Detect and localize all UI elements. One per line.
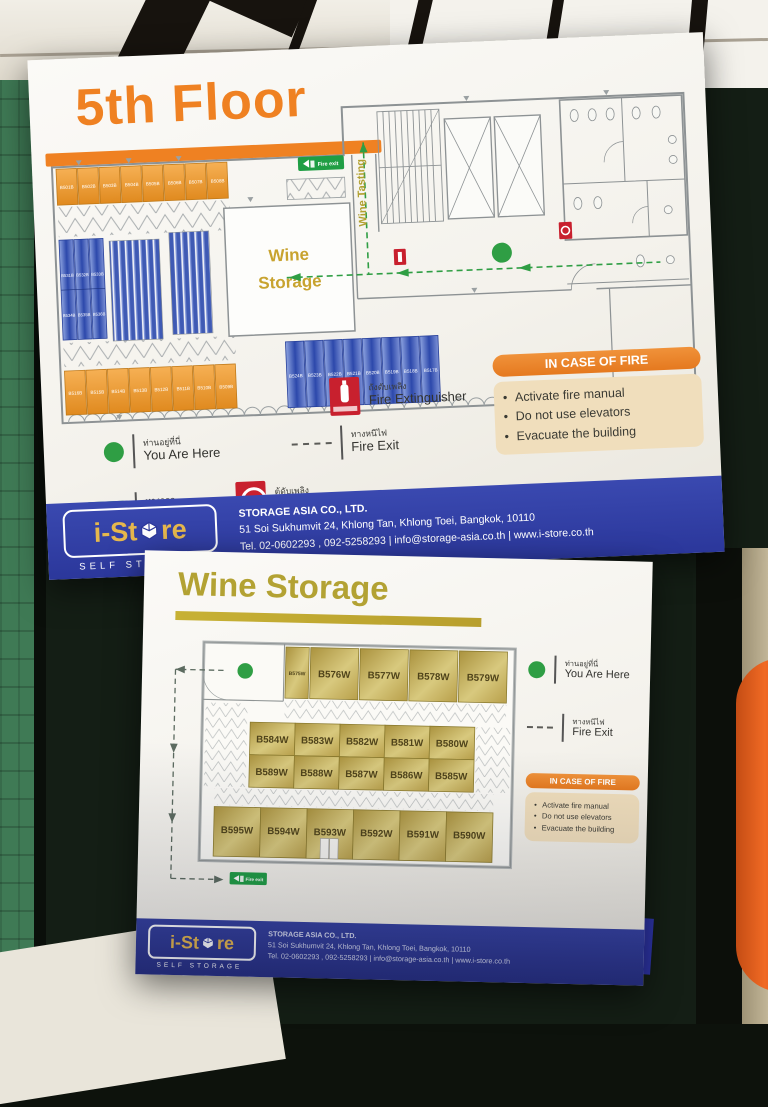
signw-title-underline: [175, 611, 481, 627]
legend-fire-exit: ทางหนีไฟ Fire Exit: [291, 423, 400, 461]
svg-text:B510B: B510B: [197, 385, 211, 391]
svg-text:B582W: B582W: [346, 736, 379, 748]
wine-legend-you-are-here: ท่านอยู่ที่นี่ You Are Here: [528, 655, 630, 685]
svg-text:B579W: B579W: [467, 673, 500, 685]
brand-subtitle: SELF STORAGE: [147, 961, 251, 970]
svg-text:B588W: B588W: [300, 768, 333, 780]
extinguisher-text: Fire Extinguisher: [369, 389, 467, 409]
svg-text:B509B: B509B: [219, 384, 233, 390]
svg-text:B592W: B592W: [360, 828, 393, 840]
svg-text:B577W: B577W: [368, 670, 401, 682]
svg-text:Fire exit: Fire exit: [318, 161, 339, 168]
you-are-here-marker: [491, 242, 512, 263]
svg-text:B583W: B583W: [301, 735, 334, 747]
wine-fire-notice: IN CASE OF FIRE Activate fire manual Do …: [524, 773, 640, 844]
brand-logo: i-St re SELF STORAGE: [147, 924, 252, 970]
wine-floor-plan: B575W B576W B577W B578W B579W B584WB583W…: [147, 628, 525, 904]
svg-text:Storage: Storage: [258, 271, 322, 293]
svg-text:B522B: B522B: [328, 371, 342, 377]
svg-text:B511B: B511B: [176, 386, 190, 392]
svg-text:B506B: B506B: [168, 180, 182, 186]
svg-text:B508B: B508B: [211, 178, 225, 184]
svg-text:B576W: B576W: [318, 669, 351, 681]
svg-text:B524B: B524B: [289, 373, 303, 379]
fire-notice: IN CASE OF FIRE Activate fire manual Do …: [492, 346, 704, 455]
svg-text:B578W: B578W: [417, 671, 450, 683]
svg-text:B518B: B518B: [404, 368, 418, 374]
green-door: [0, 80, 36, 1024]
svg-text:B501B: B501B: [60, 185, 74, 191]
svg-text:B512B: B512B: [154, 387, 168, 393]
svg-text:B586W: B586W: [390, 770, 423, 782]
fire-exit-sign: Fire exit: [298, 155, 345, 171]
legend-divider: [132, 434, 135, 468]
fire-exit-text: Fire Exit: [572, 726, 613, 740]
wine-legend-fire-exit: ทางหนีไฟ Fire Exit: [527, 713, 613, 743]
svg-text:B520B: B520B: [366, 370, 380, 376]
legend-fire-extinguisher: ถังดับเพลิง Fire Extinguisher: [329, 372, 467, 416]
fire-notice-item: Evacuate the building: [534, 822, 630, 836]
svg-text:B536B: B536B: [93, 311, 106, 317]
svg-text:B584W: B584W: [256, 734, 289, 746]
fire-notice-title: IN CASE OF FIRE: [526, 773, 640, 791]
svg-text:B523B: B523B: [308, 372, 322, 378]
svg-text:B534B: B534B: [63, 313, 76, 319]
svg-text:B589W: B589W: [255, 767, 288, 779]
svg-text:Fire exit: Fire exit: [245, 877, 263, 882]
svg-text:B515B: B515B: [90, 389, 104, 395]
svg-text:B517B: B517B: [424, 367, 438, 373]
svg-text:B519B: B519B: [385, 369, 399, 375]
sign-5th-floor: 5th Floor: [27, 32, 724, 580]
svg-text:B581W: B581W: [391, 737, 424, 749]
wine-units-bottom: [213, 807, 493, 863]
svg-text:B590W: B590W: [453, 830, 486, 842]
brand-name-right: re: [217, 933, 234, 954]
svg-text:B513B: B513B: [133, 388, 147, 394]
brand-name-left: i-St: [170, 931, 199, 953]
svg-text:B531B: B531B: [61, 273, 74, 279]
wine-storage-room: Wine Storage: [224, 203, 355, 336]
toilet-fixtures: [570, 105, 682, 269]
svg-text:B580W: B580W: [436, 738, 469, 750]
signw-title: Wine Storage: [178, 565, 389, 608]
fire-hose-marker: [559, 222, 573, 240]
orange-object: [736, 658, 768, 992]
fire-extinguisher-marker: [394, 249, 407, 265]
legend-divider: [562, 714, 564, 742]
sign-wine-storage: Wine Storage: [135, 550, 652, 985]
dashed-line-symbol: [527, 726, 553, 729]
svg-text:B505B: B505B: [146, 181, 160, 187]
company-info: STORAGE ASIA CO., LTD. 51 Soi Sukhumvit …: [268, 928, 511, 967]
svg-text:B585W: B585W: [435, 771, 468, 783]
svg-text:B595W: B595W: [221, 825, 254, 837]
you-are-here-text: You Are Here: [565, 668, 630, 683]
svg-text:B594W: B594W: [267, 826, 300, 838]
svg-text:B516B: B516B: [68, 390, 82, 396]
stairs: [377, 109, 444, 223]
svg-text:B514B: B514B: [111, 389, 125, 395]
svg-text:B533B: B533B: [91, 271, 104, 277]
legend-you-are-here: ท่านอยู่ที่นี่ You Are Here: [103, 431, 221, 470]
brand-name-right: re: [161, 514, 188, 546]
wine-fire-exit-sign: Fire exit: [230, 872, 267, 885]
svg-text:B507B: B507B: [189, 179, 203, 185]
units-blue-left: [59, 238, 107, 340]
dashed-line-symbol: [292, 442, 332, 446]
legend-divider: [554, 656, 556, 684]
you-are-here-dot: [528, 661, 545, 678]
svg-text:B503B: B503B: [103, 183, 117, 189]
you-are-here-text: You Are Here: [143, 445, 220, 464]
cube-icon: [139, 520, 160, 541]
svg-text:B587W: B587W: [345, 769, 378, 781]
brand-name-left: i-St: [93, 516, 138, 549]
cube-icon: [201, 936, 215, 950]
signw-footer: i-St re SELF STORAGE STORAGE ASIA CO., L…: [135, 918, 644, 986]
wine-tasting-label: Wine Tasting: [355, 159, 370, 227]
fire-exit-text: Fire Exit: [351, 437, 399, 455]
svg-text:B502B: B502B: [82, 184, 96, 190]
svg-text:B575W: B575W: [289, 671, 306, 677]
svg-text:B532B: B532B: [76, 272, 89, 278]
units-blue-dense-2: [169, 231, 213, 335]
fire-extinguisher-icon: [329, 377, 361, 416]
you-are-here-dot: [103, 442, 124, 463]
svg-text:Wine: Wine: [268, 245, 309, 266]
svg-text:B591W: B591W: [407, 829, 440, 841]
legend-divider: [340, 426, 343, 460]
svg-text:B535B: B535B: [78, 312, 91, 318]
units-blue-dense-1: [109, 239, 163, 341]
svg-text:B504B: B504B: [125, 182, 139, 188]
svg-text:B593W: B593W: [314, 827, 347, 839]
elevator-shafts: [444, 115, 544, 219]
svg-text:B521B: B521B: [347, 371, 361, 377]
company-info: STORAGE ASIA CO., LTD. 51 Soi Sukhumvit …: [238, 491, 594, 555]
